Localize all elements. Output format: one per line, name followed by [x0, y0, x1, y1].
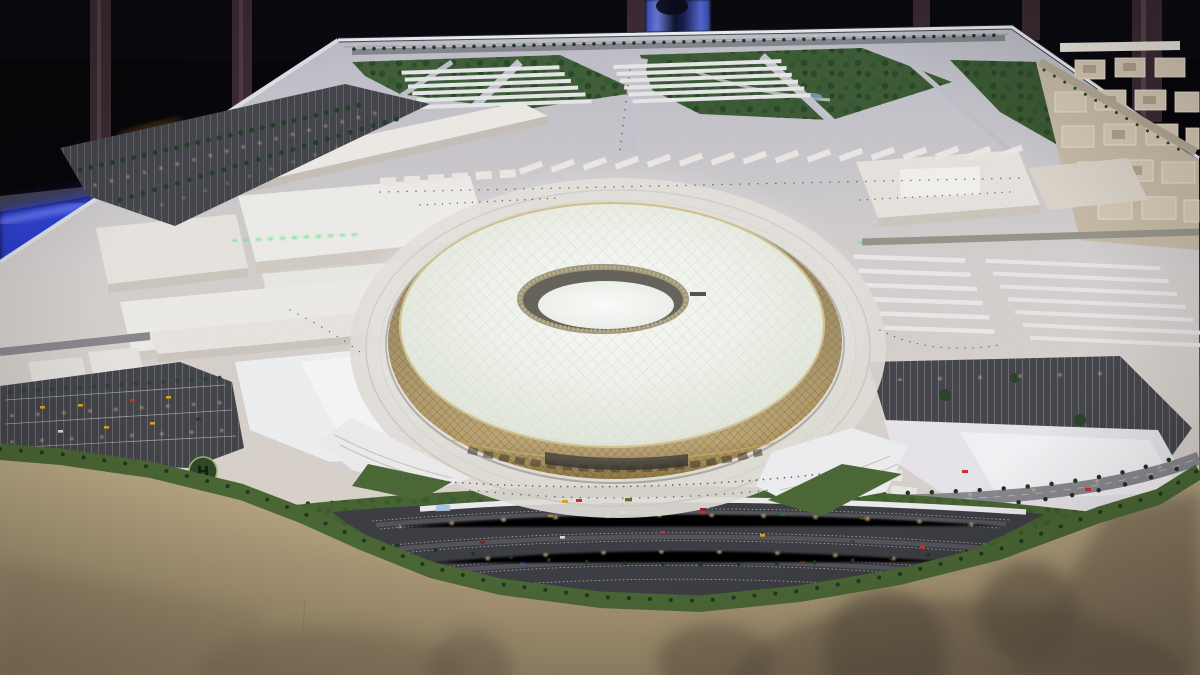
vignette — [0, 0, 1200, 675]
scene-canvas: H — [0, 0, 1200, 675]
exhibit-photo: H — [0, 0, 1200, 675]
